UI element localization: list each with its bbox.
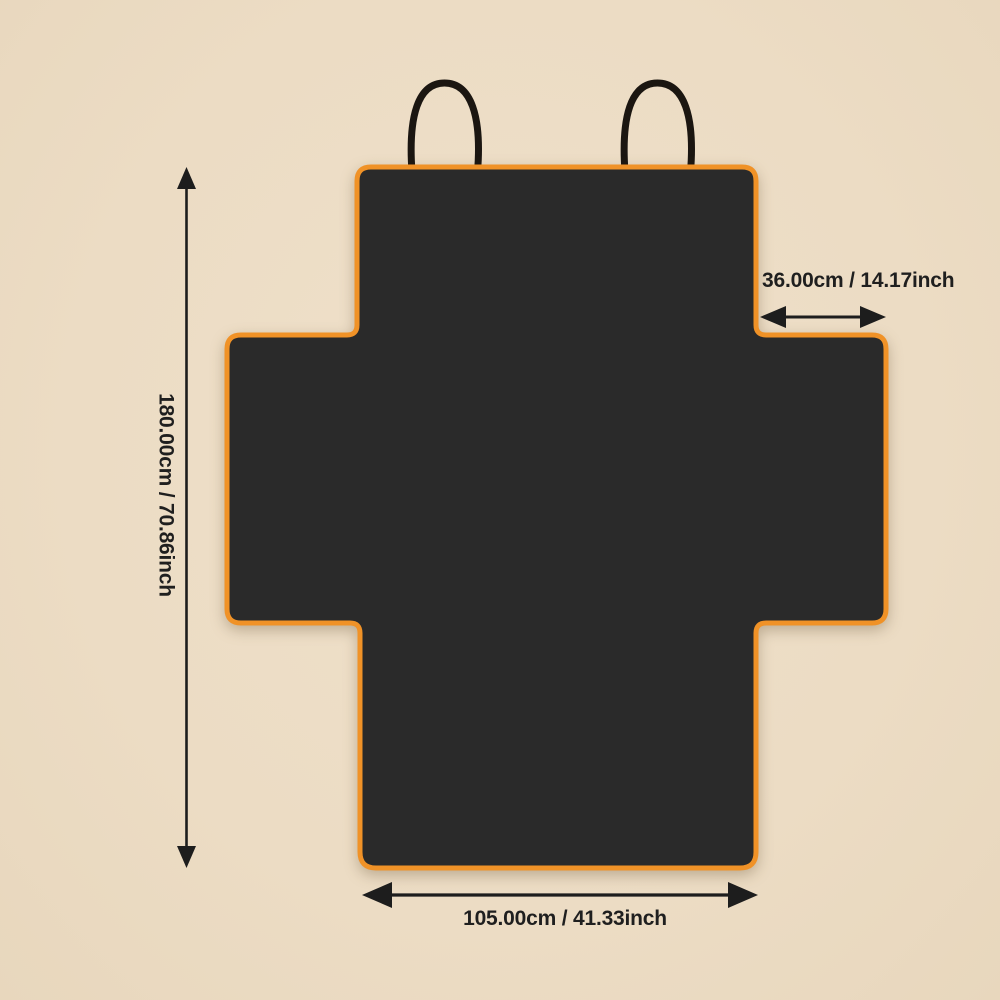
seat-cover-scene [0, 0, 1000, 1000]
left-strap-loop [411, 83, 478, 172]
bottom-width-dimension-arrow [362, 882, 758, 908]
product-dimension-diagram: 180.00cm / 70.86inch 36.00cm / 14.17inch… [0, 0, 1000, 1000]
height-arrow-down-head-icon [177, 846, 196, 868]
height-dimension-label: 180.00cm / 70.86inch [153, 385, 179, 606]
bottom-width-dimension-label: 105.00cm / 41.33inch [355, 906, 775, 932]
side-flap-dimension-arrow [760, 306, 886, 328]
height-arrow-up-head-icon [177, 167, 196, 189]
hanging-straps [411, 83, 691, 172]
bottom-width-arrow-left-head-icon [362, 882, 392, 908]
side-flap-arrow-left-head-icon [760, 306, 786, 328]
height-dimension-arrow [177, 167, 196, 868]
side-flap-dimension-label: 36.00cm / 14.17inch [762, 268, 954, 294]
side-flap-arrow-right-head-icon [860, 306, 886, 328]
bottom-width-arrow-right-head-icon [728, 882, 758, 908]
right-strap-loop [624, 83, 691, 172]
